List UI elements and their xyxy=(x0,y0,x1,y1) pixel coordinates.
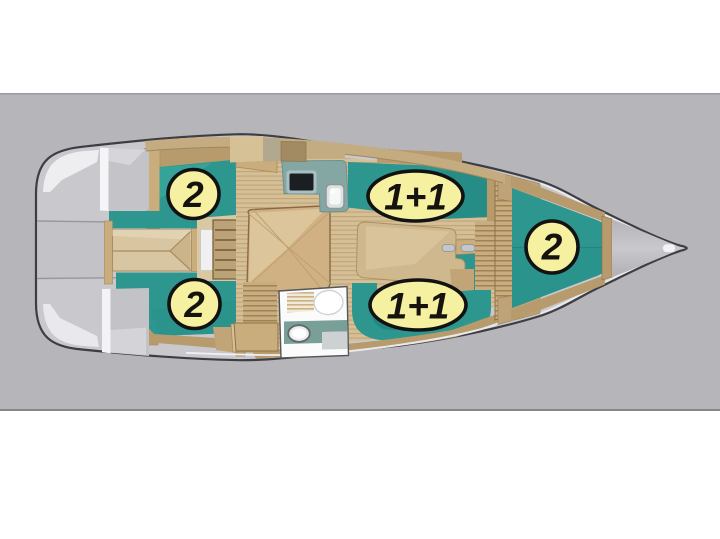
svg-text:1+1: 1+1 xyxy=(387,286,450,327)
svg-text:2: 2 xyxy=(541,227,563,268)
svg-text:2: 2 xyxy=(182,174,203,215)
svg-text:2: 2 xyxy=(183,284,204,325)
svg-text:1+1: 1+1 xyxy=(384,177,447,218)
